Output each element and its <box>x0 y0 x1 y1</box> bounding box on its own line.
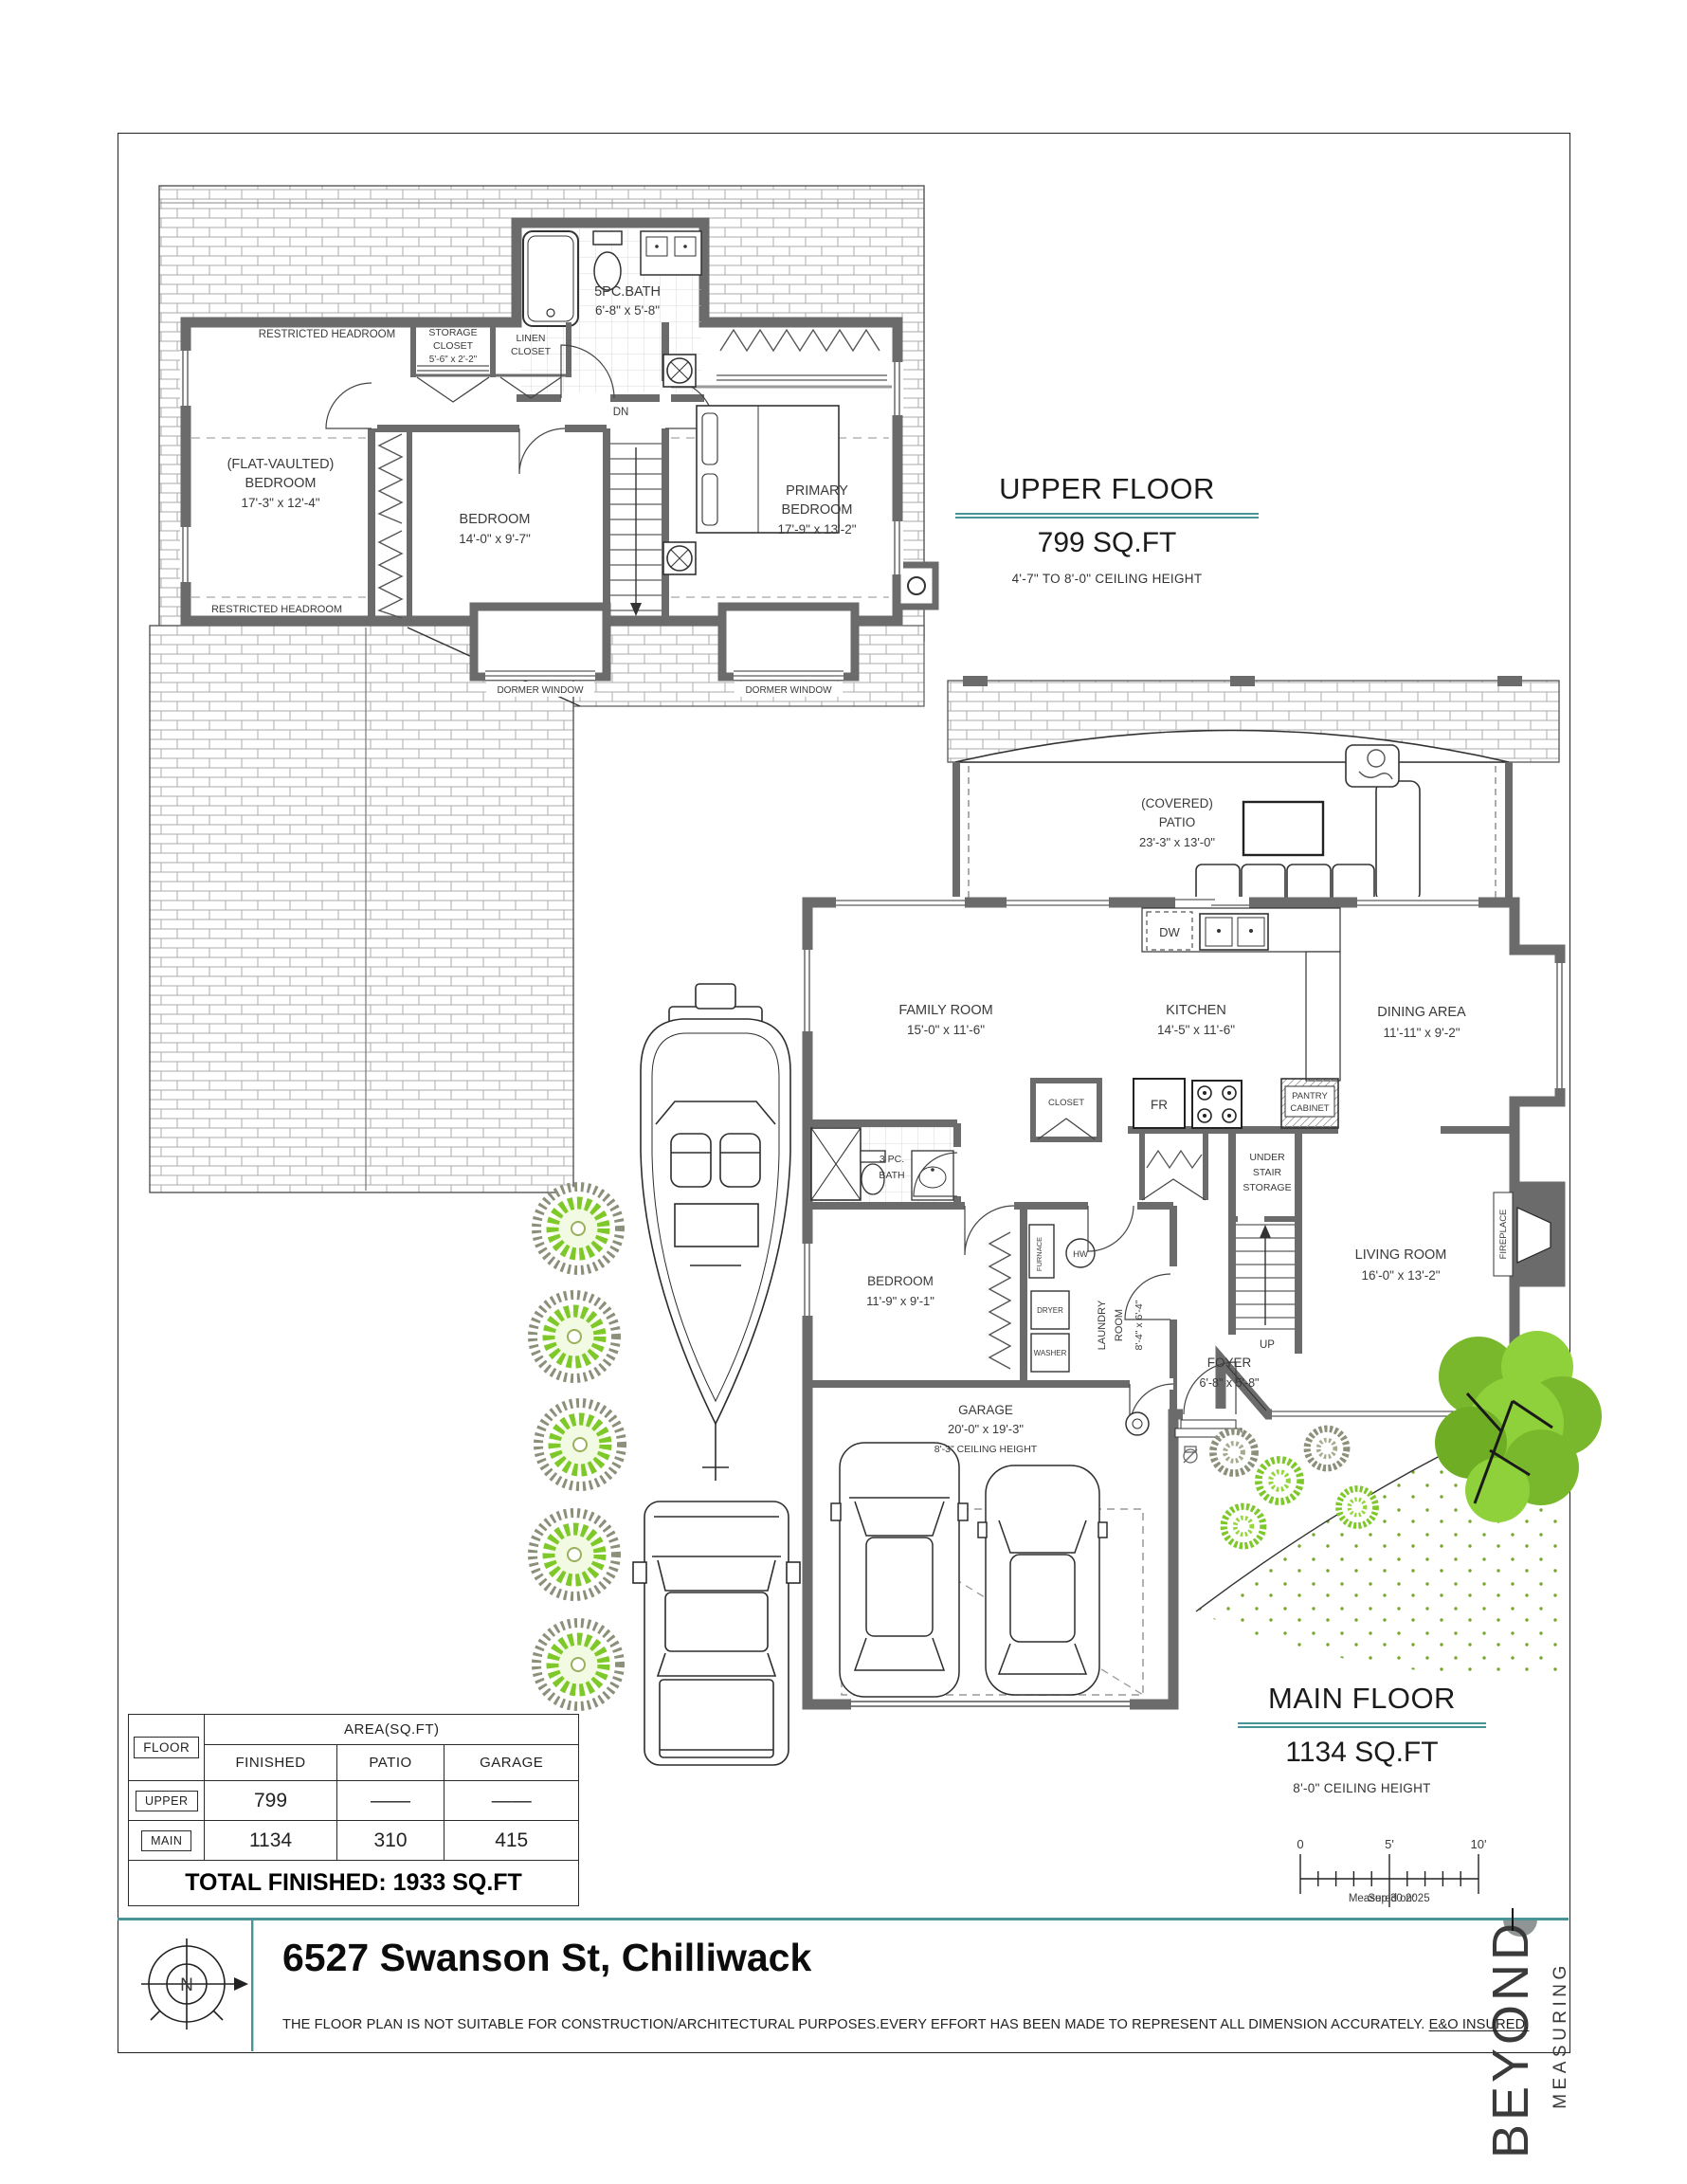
label-flat-bedroom-1: (FLAT-VAULTED) <box>227 457 335 472</box>
label-foyer-2: 6'-8" x 5'-8" <box>1200 1376 1260 1390</box>
label-kitchen-1: KITCHEN <box>1166 1003 1226 1018</box>
table-upper-finished: 799 <box>205 1781 336 1821</box>
main-floor-title: MAIN FLOOR <box>1238 1682 1486 1716</box>
label-dining-2: 11'-11" x 9'-2" <box>1383 1026 1460 1040</box>
label-laundry-3: 8'-4" x 6'-4" <box>1134 1300 1145 1350</box>
label-garage-2: 20'-0" x 19'-3" <box>948 1422 1024 1436</box>
table-upper-garage: —— <box>444 1781 579 1821</box>
label-restricted-headroom-bottom: RESTRICTED HEADROOM <box>211 604 342 615</box>
car-coupe <box>978 1465 1107 1695</box>
logo-tagline: MEASURING <box>1551 1961 1570 2109</box>
boat <box>641 984 790 1481</box>
main-title-underline <box>1238 1722 1486 1728</box>
label-family-1: FAMILY ROOM <box>898 1003 992 1018</box>
main-floor-ceiling: 8'-0" CEILING HEIGHT <box>1238 1781 1486 1795</box>
label-3pc-bath-2: BATH <box>879 1170 904 1181</box>
table-row-main: MAIN 1134 310 415 <box>129 1821 579 1861</box>
table-upper-label: UPPER <box>136 1791 198 1811</box>
table-floor-header: FLOOR <box>134 1737 199 1758</box>
logo-name: BEYOND <box>1482 1920 1539 2158</box>
table-col-patio: PATIO <box>336 1745 444 1781</box>
label-bedroom2-2: 14'-0" x 9'-7" <box>459 532 531 546</box>
label-primary-2: BEDROOM <box>782 502 853 518</box>
label-patio-1: (COVERED) <box>1141 796 1213 810</box>
label-main-bedroom-1: BEDROOM <box>867 1274 934 1288</box>
label-dryer: DRYER <box>1037 1306 1063 1315</box>
label-5pc-bath: 5PC.BATH <box>594 284 661 300</box>
table-total: TOTAL FINISHED: 1933 SQ.FT <box>129 1861 579 1906</box>
label-pantry-2: CABINET <box>1290 1103 1329 1114</box>
main-floor-title-block: MAIN FLOOR 1134 SQ.FT 8'-0" CEILING HEIG… <box>1238 1682 1486 1795</box>
scale-measured-date: Sep 30 2025 <box>1368 1893 1429 1904</box>
label-dn: DN <box>613 407 629 418</box>
label-family-2: 15'-0" x 11'-6" <box>907 1023 985 1037</box>
label-pantry-1: PANTRY <box>1292 1091 1328 1101</box>
compass-icon: N <box>141 1938 248 2029</box>
area-summary-table: FLOOR AREA(SQ.FT) FINISHED PATIO GARAGE … <box>128 1714 579 1906</box>
label-5pc-bath-dims: 6'-8" x 5'-8" <box>595 303 660 318</box>
hedge-row <box>533 1187 622 1706</box>
logo-beyond-measuring: BEYOND MEASURING <box>1482 1920 1570 2158</box>
label-garage-1: GARAGE <box>958 1403 1013 1417</box>
main-floor-area: 1134 SQ.FT <box>1238 1737 1486 1769</box>
label-dw: DW <box>1159 925 1180 939</box>
label-hw: HW <box>1073 1249 1088 1260</box>
label-foyer-1: FOYER <box>1207 1356 1252 1370</box>
label-dormer-window-1: DORMER WINDOW <box>497 685 584 696</box>
label-flat-bedroom-2: BEDROOM <box>245 476 317 491</box>
label-dining-1: DINING AREA <box>1377 1005 1466 1020</box>
upper-title-underline <box>955 513 1259 519</box>
label-flat-bedroom-3: 17'-3" x 12'-4" <box>241 496 319 510</box>
car-suv <box>831 1443 968 1697</box>
label-living-1: LIVING ROOM <box>1355 1247 1447 1263</box>
upper-floor-area: 799 SQ.FT <box>955 527 1259 559</box>
scale-5: 5' <box>1385 1837 1394 1851</box>
label-washer: WASHER <box>1034 1349 1067 1357</box>
scale-bar: 0 5' 10' Measured on: Sep 30 2025 <box>1297 1837 1486 1907</box>
table-row-upper: UPPER 799 —— —— <box>129 1781 579 1821</box>
label-patio-3: 23'-3" x 13'-0" <box>1139 835 1215 849</box>
table-main-finished: 1134 <box>205 1821 336 1861</box>
label-primary-3: 17'-9" x 13'-2" <box>777 522 856 537</box>
label-patio-2: PATIO <box>1159 815 1196 829</box>
table-col-finished: FINISHED <box>205 1745 336 1781</box>
table-main-garage: 415 <box>444 1821 579 1861</box>
label-3pc-bath-1: 3 PC. <box>880 1154 904 1165</box>
label-up: UP <box>1260 1339 1275 1351</box>
disclaimer-eo-insured: E&O INSURED. <box>1429 2017 1530 2032</box>
upper-floor-ceiling: 4'-7" TO 8'-0" CEILING HEIGHT <box>955 572 1259 586</box>
label-restricted-headroom-top: RESTRICTED HEADROOM <box>259 329 395 340</box>
label-storage-2: CLOSET <box>433 340 474 352</box>
table-main-patio: 310 <box>336 1821 444 1861</box>
scale-10: 10' <box>1471 1837 1487 1851</box>
label-dormer-window-2: DORMER WINDOW <box>745 685 832 696</box>
label-garage-3: 8'-3" CEILING HEIGHT <box>934 1444 1038 1455</box>
label-under-stair-3: STORAGE <box>1243 1182 1291 1193</box>
label-primary-1: PRIMARY <box>786 483 848 499</box>
property-address: 6527 Swanson St, Chilliwack <box>282 1936 811 1980</box>
label-laundry-2: ROOM <box>1114 1309 1125 1341</box>
pickup-truck <box>633 1501 800 1765</box>
disclaimer-body: THE FLOOR PLAN IS NOT SUITABLE FOR CONST… <box>282 2017 1429 2032</box>
compass-north-label: N <box>180 1975 193 1995</box>
label-bedroom2-1: BEDROOM <box>460 512 531 527</box>
disclaimer-text: THE FLOOR PLAN IS NOT SUITABLE FOR CONST… <box>282 2017 1529 2032</box>
label-kitchen-2: 14'-5" x 11'-6" <box>1157 1023 1235 1037</box>
upper-floor-title: UPPER FLOOR <box>955 472 1259 506</box>
label-laundry-1: LAUNDRY <box>1097 1300 1108 1350</box>
label-storage-1: STORAGE <box>428 327 477 338</box>
label-linen-2: CLOSET <box>511 346 552 357</box>
covered-patio <box>948 676 1559 904</box>
label-linen-1: LINEN <box>517 333 546 344</box>
label-closet: CLOSET <box>1048 1098 1084 1108</box>
yard-doodle <box>1184 1447 1197 1463</box>
label-under-stair-1: UNDER <box>1249 1152 1285 1163</box>
label-living-2: 16'-0" x 13'-2" <box>1361 1268 1440 1283</box>
table-main-label: MAIN <box>141 1830 191 1851</box>
upper-floor-title-block: UPPER FLOOR 799 SQ.FT 4'-7" TO 8'-0" CEI… <box>955 472 1259 586</box>
label-storage-3: 5'-6" x 2'-2" <box>429 355 478 365</box>
label-main-bedroom-2: 11'-9" x 9'-1" <box>866 1294 934 1308</box>
label-fr: FR <box>1151 1098 1168 1112</box>
label-under-stair-2: STAIR <box>1253 1167 1282 1178</box>
table-area-header: AREA(SQ.FT) <box>205 1715 579 1745</box>
scale-0: 0 <box>1297 1837 1303 1851</box>
table-col-garage: GARAGE <box>444 1745 579 1781</box>
table-upper-patio: —— <box>336 1781 444 1821</box>
label-furnace: FURNACE <box>1035 1237 1043 1271</box>
label-fireplace: FIREPLACE <box>1498 1210 1509 1260</box>
